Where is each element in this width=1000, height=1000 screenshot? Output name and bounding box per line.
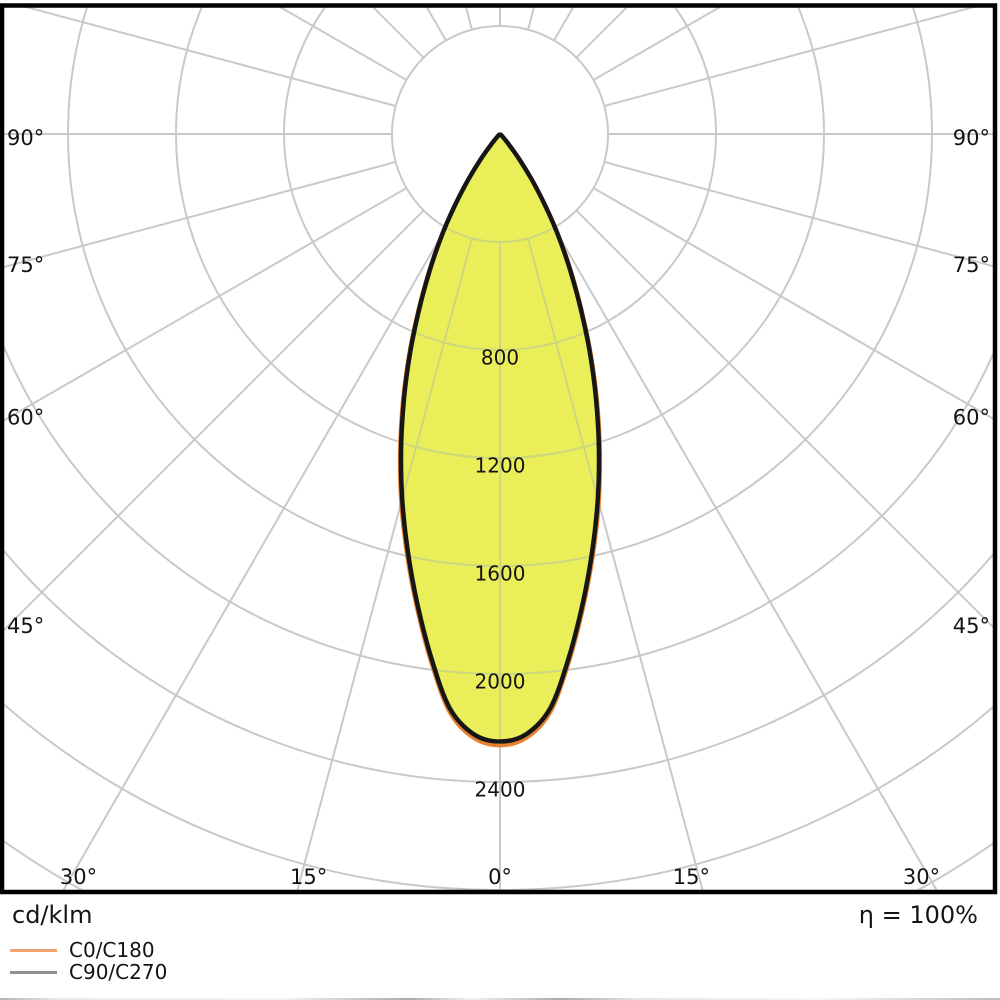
angle-tick-label: 75° bbox=[953, 253, 990, 277]
angle-tick-label: 45° bbox=[953, 614, 990, 638]
radial-tick-label: 2400 bbox=[475, 778, 526, 802]
legend-item-c90-c270: C90/C270 bbox=[10, 962, 1000, 983]
angle-tick-label: 60° bbox=[953, 406, 990, 430]
polar-chart-svg: 800120016002000240090°90°75°75°60°60°45°… bbox=[0, 0, 1000, 898]
legend-line-c0-icon bbox=[10, 949, 57, 952]
unit-label: cd/klm bbox=[12, 902, 92, 928]
radial-tick-label: 800 bbox=[481, 346, 519, 370]
radial-tick-label: 1600 bbox=[475, 562, 526, 586]
chart-footer: cd/klm η = 100% C0/C180 C90/C270 bbox=[0, 898, 1000, 1000]
plot-region: 800120016002000240090°90°75°75°60°60°45°… bbox=[0, 0, 1000, 898]
angle-tick-label: 60° bbox=[7, 406, 44, 430]
efficiency-label: η = 100% bbox=[859, 902, 978, 928]
angle-tick-label: 45° bbox=[7, 614, 44, 638]
angle-tick-label: 0° bbox=[488, 865, 512, 889]
angle-tick-label: 75° bbox=[7, 253, 44, 277]
legend-label-c90: C90/C270 bbox=[69, 962, 167, 983]
polar-chart: 800120016002000240090°90°75°75°60°60°45°… bbox=[0, 0, 1000, 898]
angle-tick-label: 90° bbox=[7, 126, 44, 150]
radial-tick-label: 1200 bbox=[475, 454, 526, 478]
angle-tick-label: 90° bbox=[953, 126, 990, 150]
legend: C0/C180 C90/C270 bbox=[0, 940, 1000, 983]
legend-item-c0-c180: C0/C180 bbox=[10, 940, 1000, 961]
footer-top-row: cd/klm η = 100% bbox=[0, 898, 1000, 928]
photometric-polar-diagram: 800120016002000240090°90°75°75°60°60°45°… bbox=[0, 0, 1000, 1000]
legend-label-c0: C0/C180 bbox=[69, 940, 155, 961]
angle-tick-label: 30° bbox=[903, 865, 940, 889]
radial-tick-label: 2000 bbox=[475, 670, 526, 694]
angle-tick-label: 15° bbox=[290, 865, 327, 889]
legend-line-c90-icon bbox=[10, 971, 57, 974]
angle-tick-label: 30° bbox=[60, 865, 97, 889]
angle-tick-label: 15° bbox=[673, 865, 710, 889]
